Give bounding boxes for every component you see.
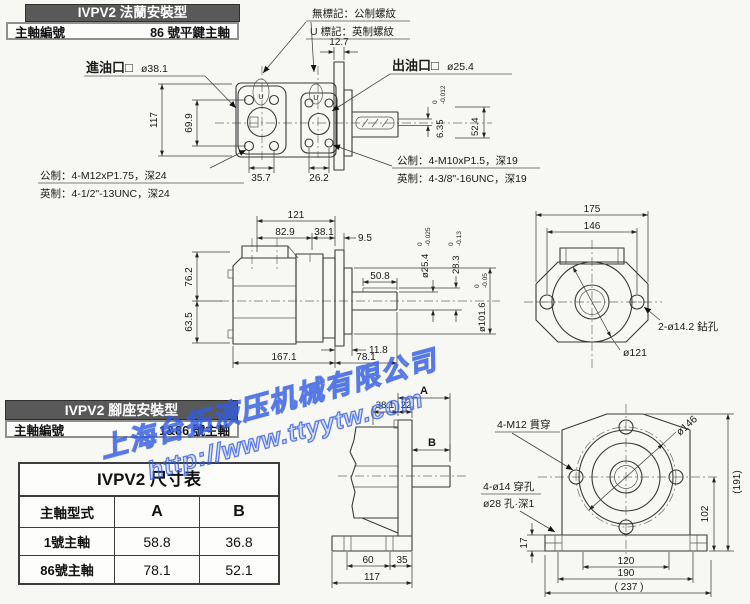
flange-shaft-label: 主軸編號	[15, 22, 65, 41]
dim-pilot-tol-lo: -0.05	[482, 273, 489, 288]
foot-front-view: ø146 4-M12 貫穿 4-ø14 穿孔 ø28 孔·深1 (191) 10…	[481, 404, 743, 597]
note-no-mark: 無標記：公制螺紋	[312, 7, 396, 20]
leader-inlet	[205, 76, 236, 108]
leader-metric-port	[263, 22, 306, 73]
note-u-mark: U 標記：英制螺紋	[310, 25, 394, 38]
dim-shaft-tol-lo: -0.025	[425, 227, 432, 246]
inlet-u-mark: U	[258, 92, 263, 101]
size-table-header-a: A	[114, 497, 199, 527]
dim-60: 60	[362, 555, 374, 566]
pilot-dia-label: ø121	[623, 347, 647, 359]
mounting-flange-plate	[335, 250, 344, 346]
foot-hole-label-2: ø28 孔·深1	[483, 497, 535, 510]
leader-inlet-thread	[210, 150, 246, 168]
outlet-u-mark: U	[313, 93, 318, 102]
dim-height-down: 63.5	[184, 312, 195, 332]
dim-bolt-spacing-2: 26.2	[309, 173, 329, 184]
side-view: 121 82.9 38.1 9.5 50.8 76.2 63.5	[184, 210, 500, 368]
dim-237: ( 237 )	[615, 582, 644, 593]
dim-key-h-tol-hi: 0	[448, 242, 455, 246]
dim-total-height: (191)	[732, 470, 743, 493]
dim-pilot-tol-hi: 0	[474, 284, 481, 288]
leader-outlet	[332, 74, 390, 111]
dim-rear-width: 175	[584, 204, 601, 215]
dim-38-1: 38.1	[376, 400, 395, 411]
leader-outlet-thread	[333, 145, 392, 166]
dim-pilot-dia: ø101.6	[477, 302, 488, 332]
dim-117-foot: 117	[364, 572, 380, 583]
flange-shaft-row: 主軸編號 86 號平鍵主軸	[6, 22, 239, 40]
foot-hole-label-1: 4-ø14 穿孔	[483, 480, 535, 493]
foot-body-outline	[350, 427, 398, 518]
size-table-row2-type: 86號主軸	[20, 555, 114, 583]
flange-section-title: IVPV2 法蘭安裝型	[25, 4, 240, 22]
outlet-port-label: 出油口□	[392, 58, 439, 73]
dim-key-tol-hi: 0	[432, 100, 439, 104]
dim-port-vertical: 69.9	[184, 113, 195, 133]
bolt-circle-label: ø146	[674, 413, 700, 438]
size-table: IVPV2 尺寸表 主軸型式 A B 1號主軸 58.8 36.8 86號主軸 …	[18, 462, 280, 585]
outlet-port-circle	[309, 114, 330, 135]
dim-shaft-length: 52.4	[470, 118, 481, 137]
dim-B: B	[428, 437, 436, 449]
bolt-thru-label: 4-M12 貫穿	[497, 418, 551, 431]
leader-foot-hole	[520, 511, 555, 532]
dim-120: 120	[618, 556, 635, 567]
dim-len-121: 121	[288, 210, 305, 221]
foot-shaft-value: 1&86 號主軸	[159, 420, 230, 439]
dim-body-height: 117	[149, 112, 160, 128]
leader-drill-holes	[644, 307, 660, 320]
dim-body-length: 167.1	[271, 352, 296, 363]
size-table-row2-b: 52.1	[199, 555, 278, 583]
size-table-header-type: 主軸型式	[20, 497, 114, 527]
leader-bolt-thru	[512, 433, 573, 470]
rear-view: 175 146 ø121 2-ø14.2 鉆孔	[524, 204, 719, 368]
dim-190: 190	[618, 568, 635, 579]
drill-holes-label: 2-ø14.2 鉆孔	[658, 320, 719, 333]
dim-key-height: 28.3	[451, 256, 462, 275]
dim-len-82-9: 82.9	[275, 227, 295, 238]
flange-shaft-value: 86 號平鍵主軸	[150, 22, 230, 41]
dim-bolt-spacing-1: 35.7	[251, 173, 271, 184]
dim-key-width: 6.35	[435, 120, 446, 139]
inlet-thread-imperial: 英制：4-1/2"-13UNC，深24	[40, 187, 170, 200]
inlet-thread-metric: 公制：4-M12xP1.75，深24	[40, 169, 167, 182]
outlet-port-dia: ø25.4	[447, 61, 474, 73]
dim-len-9-5: 9.5	[358, 233, 372, 244]
foot-bracket-plate	[398, 420, 412, 536]
size-table-row1-a: 58.8	[114, 527, 199, 555]
dim-key-tol-lo: -0.012	[440, 85, 447, 104]
size-table-row1-type: 1號主軸	[20, 527, 114, 555]
foot-shaft-row: 主軸編號 1&86 號主軸	[5, 420, 239, 438]
dim-A: A	[420, 385, 428, 397]
dim-key-h-tol-lo: -0.13	[456, 231, 463, 246]
outlet-thread-metric: 公制：4-M10xP1.5，深19	[397, 154, 518, 167]
foot-side-view: A 38.1 22 B 60 35 117	[332, 385, 466, 588]
dim-key-length: 50.8	[370, 271, 390, 282]
dim-len-38-1: 38.1	[314, 227, 334, 238]
pump-catalog-drawing: IVPV2 法蘭安裝型 主軸編號 86 號平鍵主軸 IVPV2 腳座安裝型 主軸…	[0, 0, 750, 604]
outlet-thread-imperial: 英制：4-3/8"-16UNC，深19	[397, 172, 527, 185]
dim-pad-height: 17	[519, 537, 530, 549]
size-table-title: IVPV2 尺寸表	[20, 464, 278, 497]
dim-35: 35	[396, 555, 408, 566]
foot-shaft-label: 主軸編號	[14, 420, 64, 439]
dim-22: 22	[401, 400, 412, 411]
dim-shaft-tol-hi: 0	[417, 242, 424, 246]
dim-center-height: 102	[700, 505, 711, 522]
dim-shaft-dia: ø25.4	[420, 254, 431, 278]
dim-bolt-width: 146	[584, 221, 601, 232]
size-table-row2-a: 78.1	[114, 555, 199, 583]
dim-shaft-extension: 78.1	[356, 352, 376, 363]
size-table-header-b: B	[199, 497, 278, 527]
foot-section-title: IVPV2 腳座安裝型	[5, 400, 238, 420]
inlet-port-label: 進油口□	[86, 60, 133, 75]
inlet-port-dia: ø38.1	[141, 63, 168, 75]
size-table-row1-b: 36.8	[199, 527, 278, 555]
dim-height-up: 76.2	[184, 267, 195, 287]
